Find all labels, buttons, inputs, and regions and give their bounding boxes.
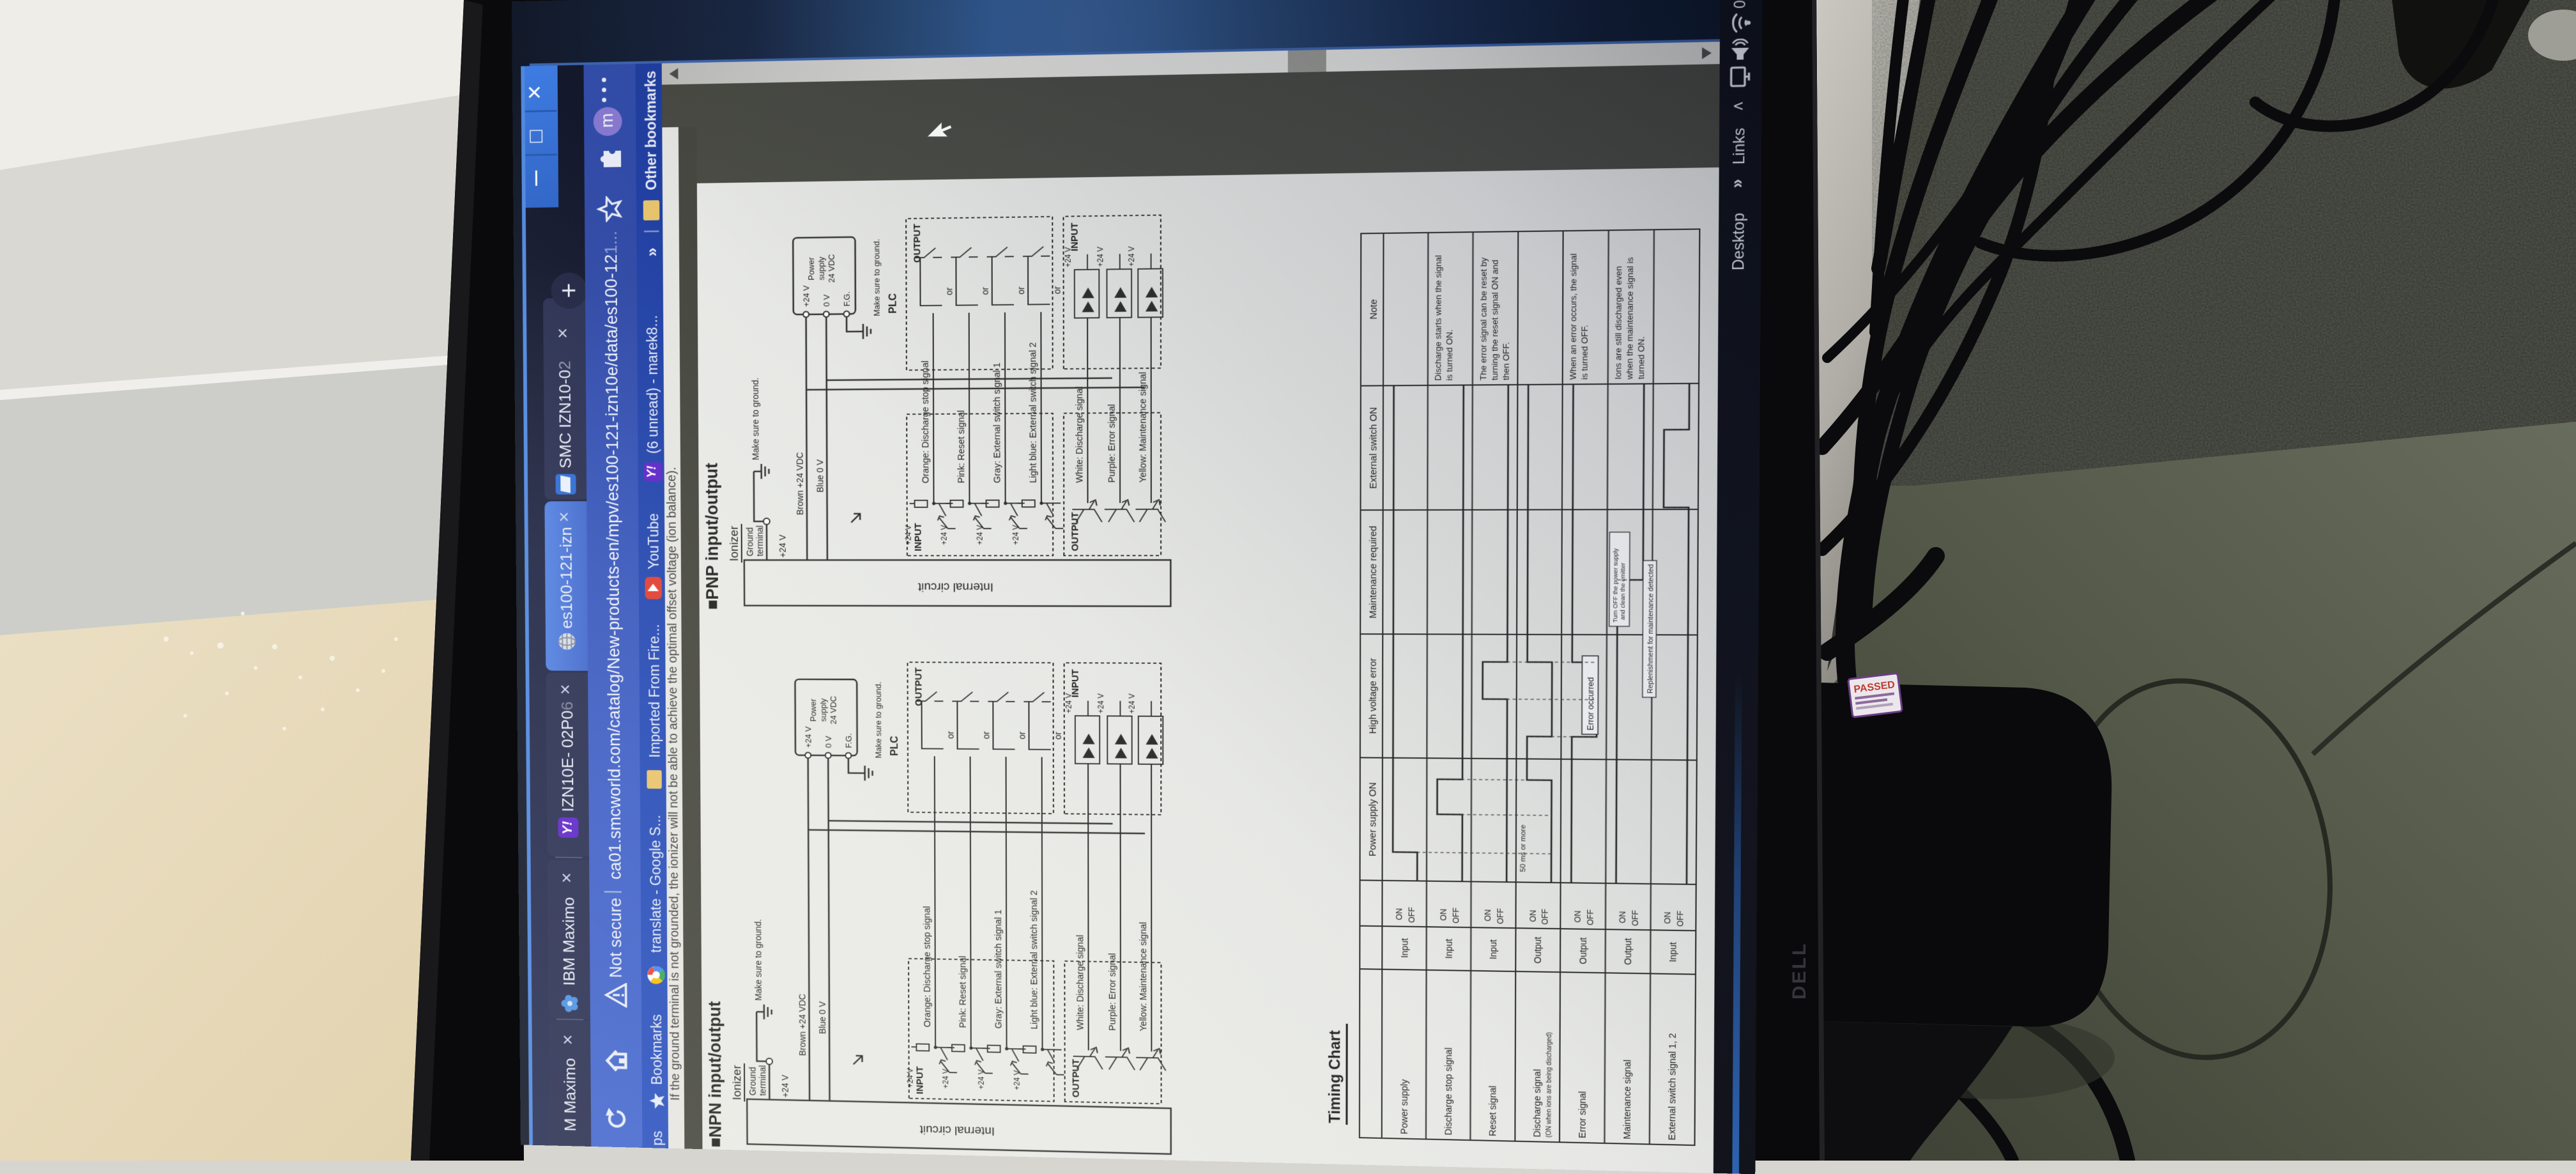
svg-text:24 VDC: 24 VDC (827, 254, 836, 282)
svg-text:terminal: terminal (758, 1065, 768, 1095)
svg-text:F.G.: F.G. (844, 733, 854, 748)
svg-text:OFF: OFF (1407, 907, 1416, 923)
svg-text:50 ms or more: 50 ms or more (1519, 824, 1528, 872)
svg-text:External switch signal 1, 2: External switch signal 1, 2 (1667, 1033, 1678, 1140)
svg-text:+24 V: +24 V (1098, 693, 1106, 714)
svg-text:or: or (1052, 286, 1062, 294)
svg-text:Blue 0 V: Blue 0 V (815, 460, 825, 493)
svg-text:+24 V: +24 V (802, 285, 811, 307)
svg-text:Output: Output (1623, 938, 1634, 965)
svg-text:INPUT: INPUT (913, 523, 924, 551)
svg-text:■PNP input/output: ■PNP input/output (703, 463, 722, 610)
svg-text:Power supply ON: Power supply ON (1367, 782, 1379, 856)
svg-text:OFF: OFF (1451, 908, 1460, 923)
svg-text:Power: Power (809, 699, 818, 722)
svg-text:Error occurred: Error occurred (1586, 677, 1596, 730)
svg-text:OFF: OFF (1496, 908, 1505, 924)
svg-text:Internal circuit: Internal circuit (918, 581, 993, 594)
svg-text:Pink: Reset signal: Pink: Reset signal (958, 955, 968, 1028)
svg-text:+24 V: +24 V (780, 1074, 790, 1097)
svg-text:Gray: External switch signal 1: Gray: External switch signal 1 (993, 909, 1003, 1029)
svg-text:Make sure to ground.: Make sure to ground. (872, 239, 882, 316)
svg-text:or: or (1053, 731, 1063, 739)
svg-text:Output: Output (1533, 936, 1544, 963)
svg-text:is turned OFF.: is turned OFF. (1579, 325, 1590, 380)
svg-text:ON: ON (1483, 909, 1492, 922)
svg-text:Orange: Discharge stop signal: Orange: Discharge stop signal (922, 906, 932, 1028)
svg-text:then OFF.: then OFF. (1501, 342, 1512, 380)
svg-text:OUTPUT: OUTPUT (914, 667, 924, 706)
svg-text:Brown +24 VDC: Brown +24 VDC (797, 993, 808, 1056)
svg-text:is turned ON.: is turned ON. (1444, 329, 1455, 380)
svg-text:Blue 0 V: Blue 0 V (818, 1001, 828, 1035)
svg-text:or: or (946, 730, 956, 739)
svg-text:Discharge starts when the sign: Discharge starts when the signal (1432, 255, 1443, 381)
svg-text:or: or (1017, 731, 1027, 739)
svg-text:Yellow: Maintenance signal: Yellow: Maintenance signal (1138, 372, 1148, 483)
svg-text:+24 V: +24 V (1097, 247, 1105, 267)
svg-text:+24 V: +24 V (1128, 246, 1136, 266)
svg-text:+24 V: +24 V (942, 1069, 951, 1088)
svg-text:Discharge signal: Discharge signal (1532, 1069, 1543, 1138)
svg-text:+24 V: +24 V (1128, 693, 1137, 714)
svg-text:+24 V: +24 V (905, 525, 913, 545)
svg-text:Light blue: External switch si: Light blue: External switch signal 2 (1029, 890, 1039, 1030)
svg-text:+24 V: +24 V (778, 534, 788, 557)
svg-text:Input: Input (1399, 938, 1409, 958)
svg-text:+24 V: +24 V (1064, 247, 1073, 267)
svg-text:Internal circuit: Internal circuit (920, 1124, 995, 1138)
svg-text:External switch ON: External switch ON (1368, 407, 1379, 489)
svg-text:Brown +24 VDC: Brown +24 VDC (795, 452, 805, 515)
svg-text:0 V: 0 V (824, 736, 834, 748)
svg-text:PLC: PLC (889, 736, 900, 756)
svg-text:+24 V: +24 V (1013, 1070, 1022, 1090)
svg-text:Input: Input (1488, 939, 1498, 960)
svg-text:When an error occurs, the sign: When an error occurs, the signal (1567, 254, 1578, 380)
svg-text:Input: Input (1444, 939, 1454, 959)
svg-text:+24 V: +24 V (977, 1069, 986, 1089)
svg-text:OFF: OFF (1585, 909, 1595, 925)
svg-text:INPUT: INPUT (1069, 222, 1080, 251)
svg-text:High voltage error: High voltage error (1368, 658, 1379, 734)
svg-text:INPUT: INPUT (915, 1066, 926, 1094)
svg-text:turning the reset signal ON an: turning the reset signal ON and (1489, 259, 1500, 380)
svg-text:(ON when ions are being discha: (ON when ions are being discharged) (1545, 1032, 1554, 1138)
svg-text:Purple: Error signal: Purple: Error signal (1107, 404, 1117, 483)
svg-text:+24 V: +24 V (1065, 693, 1073, 713)
svg-text:Ionizer: Ionizer (730, 1065, 744, 1100)
svg-text:Timing Chart: Timing Chart (1326, 1030, 1344, 1124)
svg-text:OUTPUT: OUTPUT (912, 224, 923, 263)
svg-text:Pink: Reset signal: Pink: Reset signal (956, 410, 966, 484)
svg-text:Power supply: Power supply (1399, 1079, 1409, 1134)
svg-text:OFF: OFF (1630, 910, 1641, 926)
svg-text:Make sure to ground.: Make sure to ground. (753, 919, 763, 1001)
svg-text:DELL: DELL (1789, 942, 1810, 1000)
svg-text:supply: supply (816, 256, 826, 281)
svg-text:Input: Input (1667, 942, 1678, 962)
svg-text:or: or (980, 286, 990, 295)
svg-text:+24 V: +24 V (976, 525, 985, 545)
svg-text:or: or (981, 731, 992, 739)
svg-text:White: Discharge signal: White: Discharge signal (1075, 935, 1085, 1030)
svg-text:Error signal: Error signal (1577, 1091, 1588, 1138)
svg-text:+24 V: +24 V (1012, 525, 1020, 545)
svg-text:Make sure to ground.: Make sure to ground. (751, 378, 761, 460)
svg-text:+24 V: +24 V (804, 726, 813, 748)
svg-text:Gray: External switch signal 1: Gray: External switch signal 1 (992, 362, 1002, 483)
svg-text:turned ON.: turned ON. (1636, 336, 1646, 379)
svg-text:Reset signal: Reset signal (1487, 1086, 1498, 1137)
svg-text:Purple: Error signal: Purple: Error signal (1107, 953, 1117, 1031)
svg-text:and clean the emitter: and clean the emitter (1619, 563, 1626, 620)
svg-text:Ground: Ground (745, 527, 755, 557)
svg-text:Maintenance required: Maintenance required (1368, 526, 1379, 619)
svg-text:ON: ON (1618, 911, 1628, 923)
svg-text:Power: Power (807, 257, 816, 280)
svg-text:PLC: PLC (887, 293, 899, 314)
svg-text:Light blue: External switch si: Light blue: External switch signal 2 (1028, 343, 1038, 483)
svg-text:Ionizer: Ionizer (727, 526, 740, 562)
svg-text:24 VDC: 24 VDC (829, 696, 838, 725)
svg-text:The error signal can be reset: The error signal can be reset by (1478, 257, 1489, 380)
svg-text:F.G.: F.G. (842, 291, 852, 307)
svg-text:OFF: OFF (1540, 909, 1549, 925)
svg-text:Yellow: Maintenance signal: Yellow: Maintenance signal (1138, 922, 1148, 1031)
svg-text:Make sure to ground.: Make sure to ground. (873, 682, 883, 759)
svg-text:Orange: Discharge stop signal: Orange: Discharge stop signal (920, 360, 930, 483)
svg-text:ON: ON (1573, 911, 1583, 923)
svg-text:terminal: terminal (755, 525, 765, 557)
svg-text:when the maintenance signal is: when the maintenance signal is (1624, 257, 1636, 380)
svg-text:Ground: Ground (747, 1067, 758, 1095)
svg-text:or: or (1016, 286, 1026, 295)
svg-text:ON: ON (1528, 910, 1538, 922)
svg-text:Maintenance signal: Maintenance signal (1622, 1060, 1633, 1139)
svg-text:+24 V: +24 V (907, 1068, 915, 1088)
svg-text:INPUT: INPUT (1070, 669, 1081, 698)
svg-text:0 V: 0 V (822, 294, 832, 307)
svg-text:White: Discharge signal: White: Discharge signal (1074, 387, 1084, 483)
svg-text:OFF: OFF (1675, 911, 1685, 927)
svg-text:supply: supply (818, 698, 828, 722)
svg-text:Replenishment for maintenance: Replenishment for maintenance detected (1647, 564, 1655, 693)
svg-text:Note: Note (1368, 299, 1379, 320)
svg-text:■NPN input/output: ■NPN input/output (706, 1001, 725, 1148)
svg-text:ON: ON (1439, 909, 1448, 921)
svg-text:Ions are still discharged even: Ions are still discharged even (1613, 266, 1623, 380)
svg-text:Output: Output (1578, 937, 1589, 964)
svg-text:ON: ON (1662, 912, 1673, 924)
svg-text:+24 V: +24 V (940, 525, 949, 545)
svg-text:Discharge stop signal: Discharge stop signal (1443, 1047, 1454, 1136)
svg-text:or: or (944, 287, 954, 295)
svg-text:Turn OFF the power supply: Turn OFF the power supply (1612, 548, 1620, 622)
svg-text:ON: ON (1394, 908, 1404, 920)
